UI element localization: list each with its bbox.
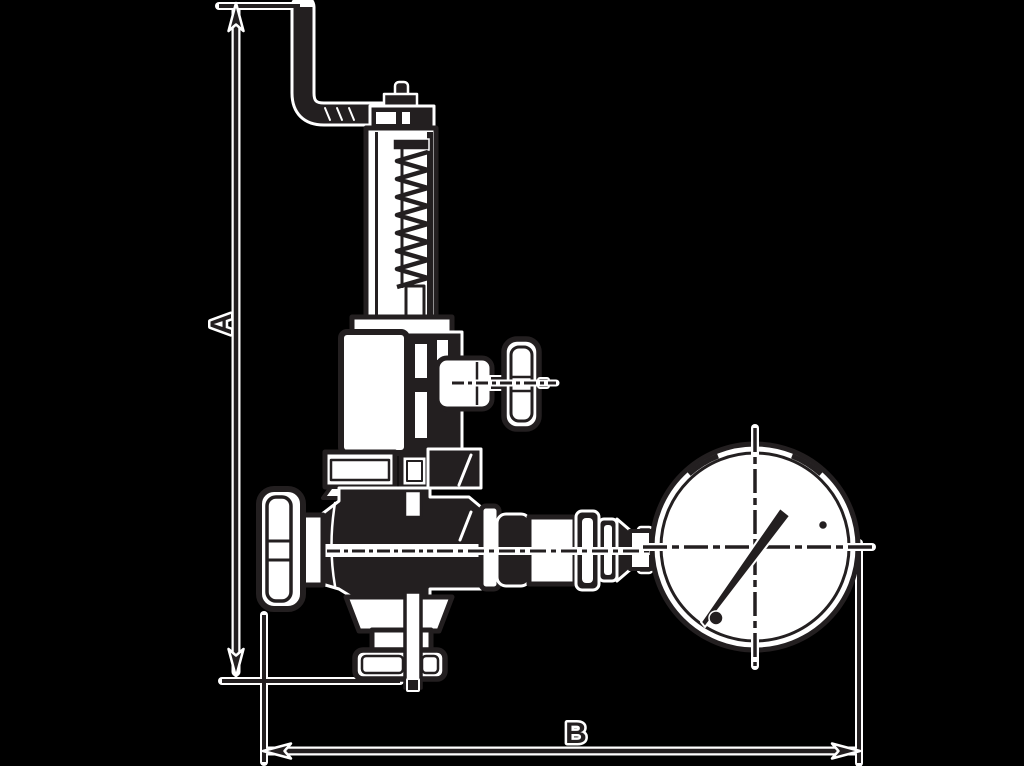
spring-housing (352, 128, 452, 334)
top-cap (370, 82, 434, 131)
drain-tube (405, 592, 421, 688)
drain-outlet (346, 592, 452, 691)
dimension-b-label: B (565, 717, 587, 750)
drawing-canvas: A B (0, 0, 1024, 766)
gauge-screw-icon (709, 611, 723, 625)
gauge-screw-icon (819, 521, 828, 530)
pressure-gauge (643, 428, 872, 666)
dimension-a-label: A (205, 313, 238, 335)
bottom-flange (355, 650, 445, 679)
valve-dimensional-drawing: A B (0, 0, 1024, 766)
